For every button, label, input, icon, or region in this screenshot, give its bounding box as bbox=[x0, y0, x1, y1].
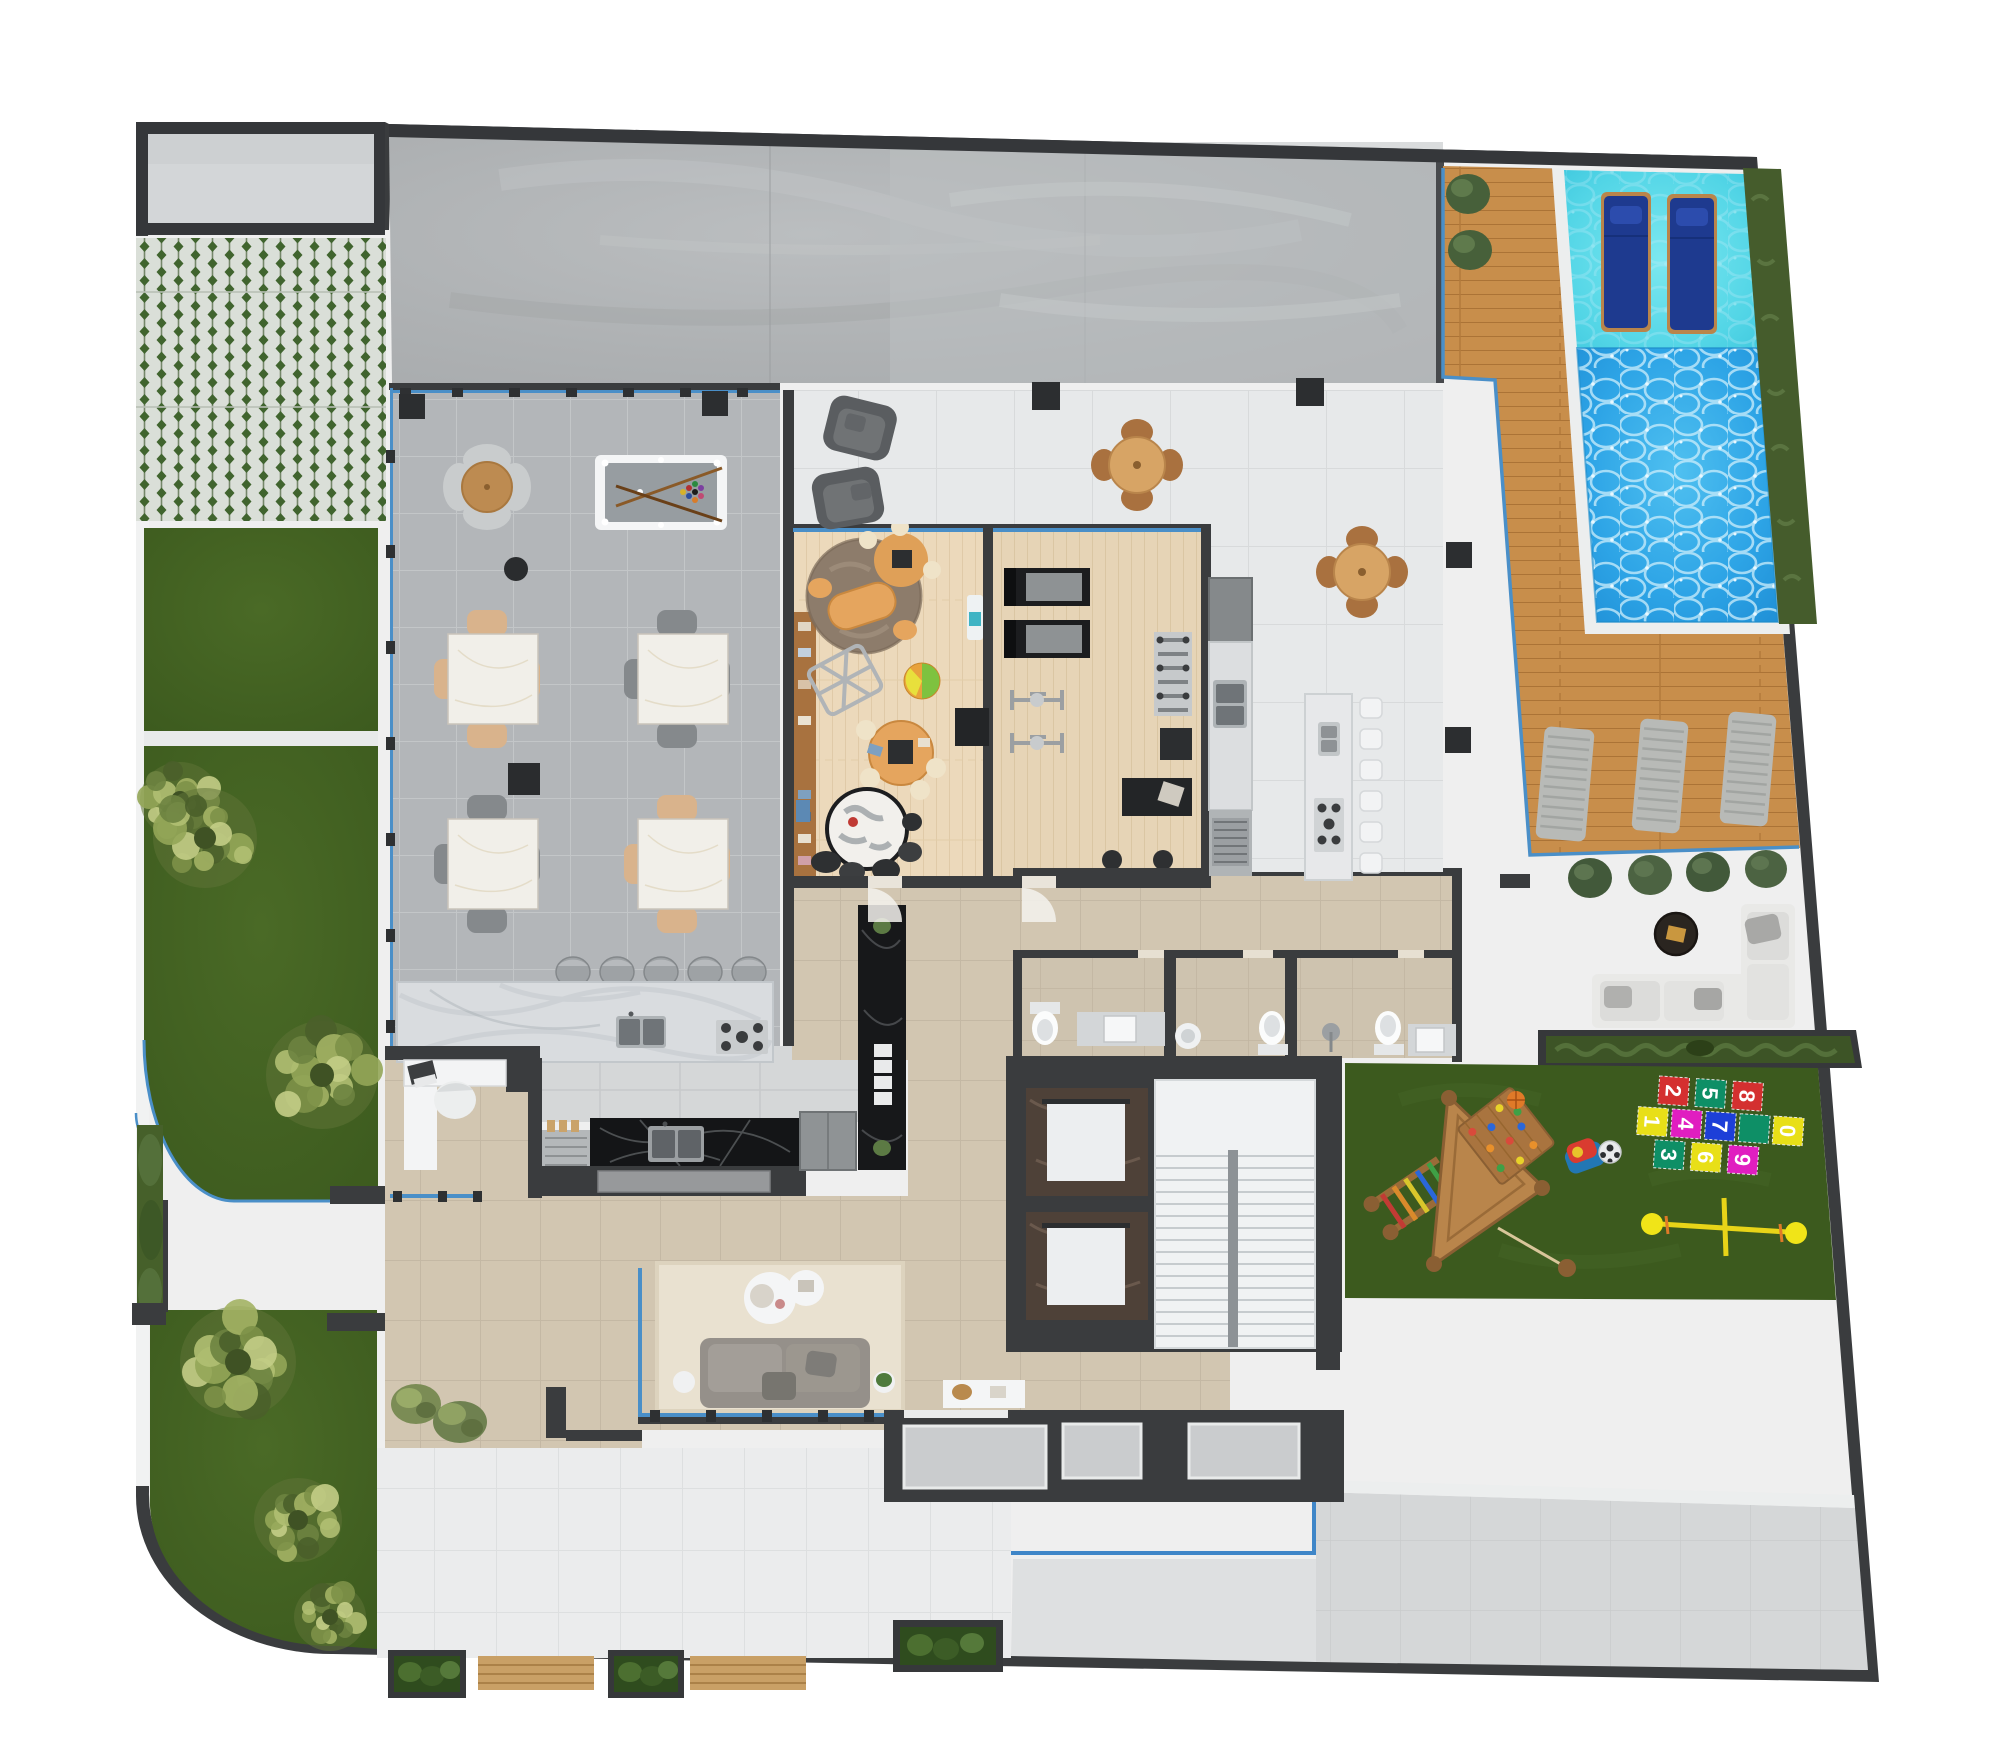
svg-text:3: 3 bbox=[1656, 1148, 1682, 1162]
svg-text:5: 5 bbox=[1697, 1087, 1723, 1101]
svg-text:6: 6 bbox=[1693, 1150, 1719, 1164]
svg-text:1: 1 bbox=[1639, 1115, 1665, 1129]
svg-text:9: 9 bbox=[1730, 1153, 1756, 1167]
svg-text:8: 8 bbox=[1734, 1089, 1760, 1103]
svg-text:7: 7 bbox=[1707, 1119, 1733, 1133]
svg-text:2: 2 bbox=[1660, 1084, 1686, 1098]
svg-text:0: 0 bbox=[1775, 1124, 1801, 1138]
